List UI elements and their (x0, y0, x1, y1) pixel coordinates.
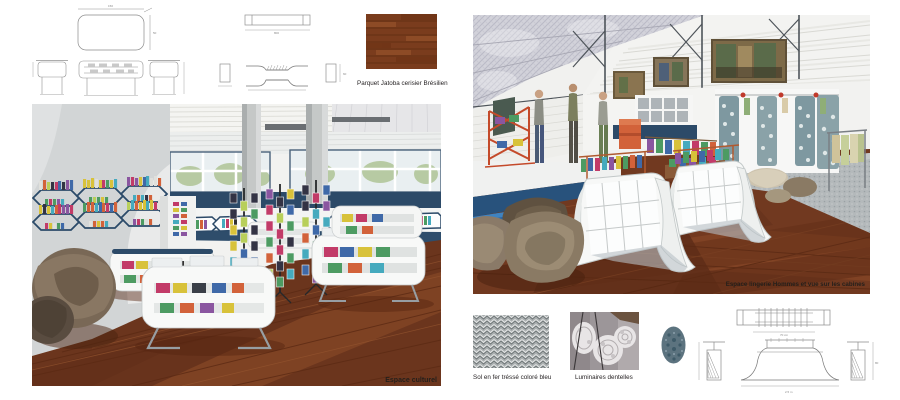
svg-text:Espace culturel: Espace culturel (385, 377, 437, 384)
svg-text:70 cm: 70 cm (780, 333, 789, 337)
svg-text:2.5 m: 2.5 m (785, 390, 793, 394)
svg-text:Espace lingerie Hommes et vue: Espace lingerie Hommes et vue sur les ca… (726, 281, 866, 288)
svg-text:60: 60 (343, 72, 347, 76)
svg-text:150: 150 (108, 4, 113, 8)
svg-text:50: 50 (153, 31, 157, 35)
svg-text:800: 800 (274, 31, 279, 35)
svg-text:80: 80 (875, 361, 879, 365)
